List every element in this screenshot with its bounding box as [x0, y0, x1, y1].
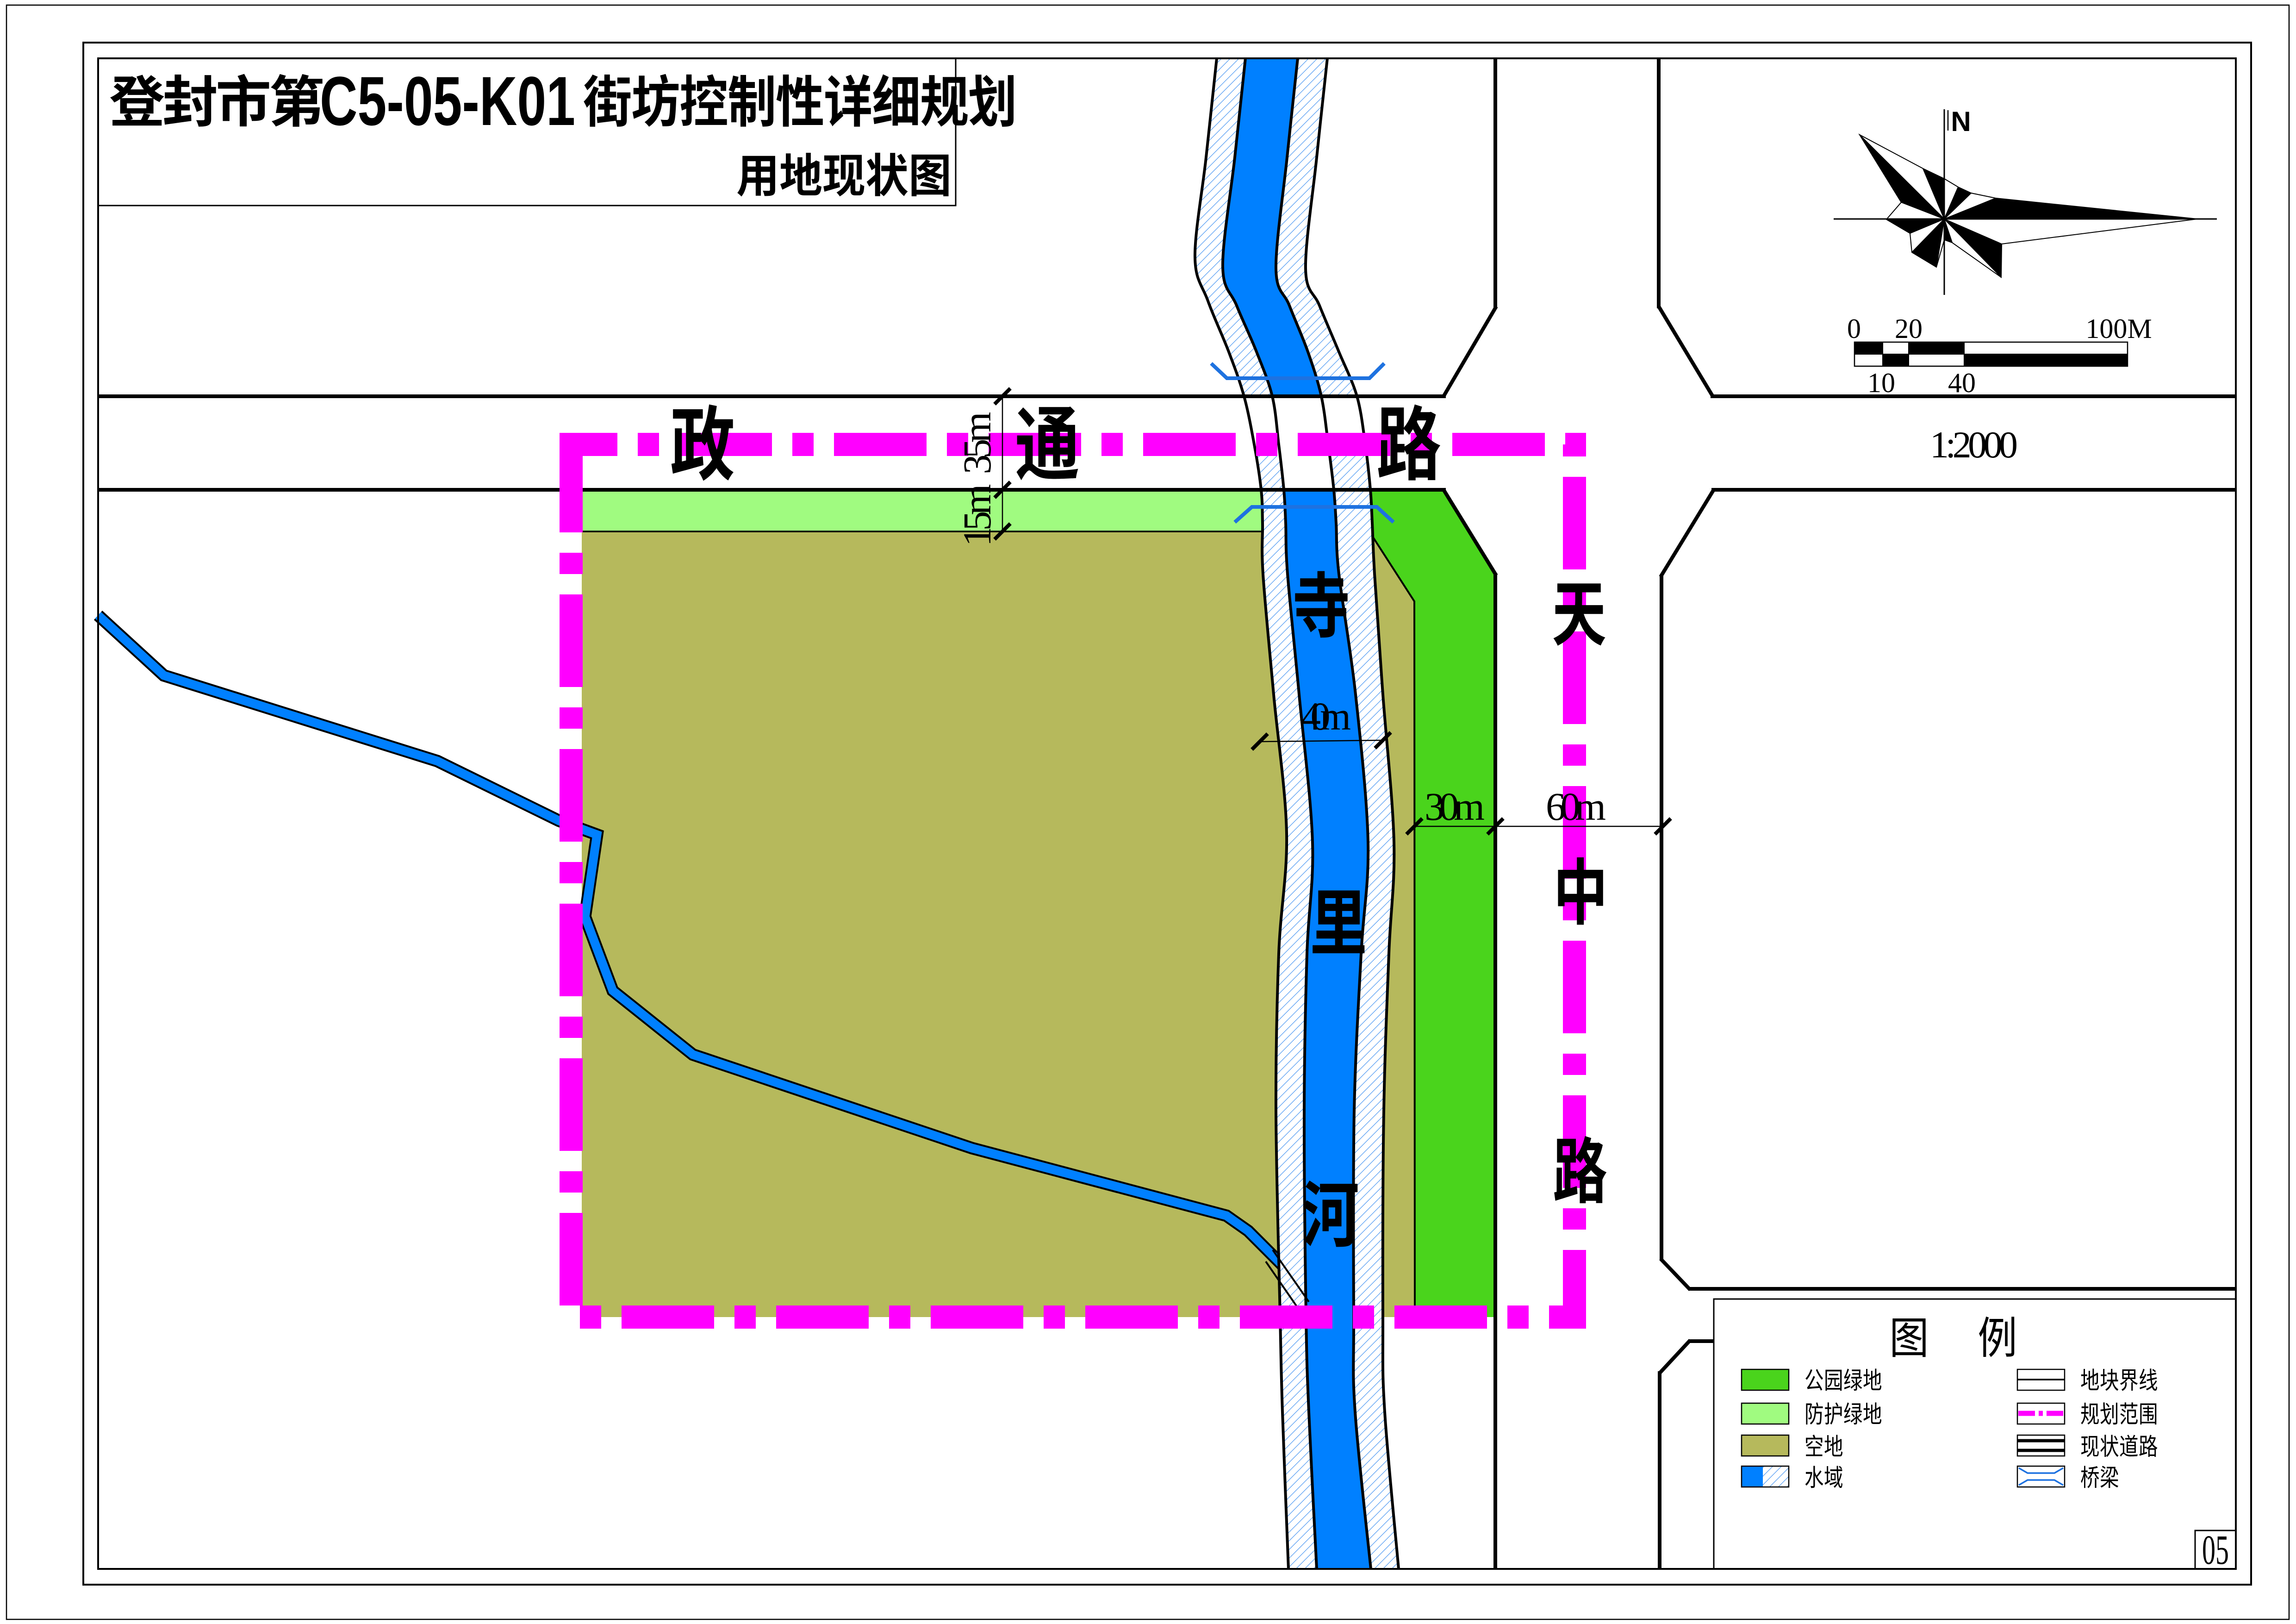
svg-text:1:2000: 1:2000 — [1930, 424, 2018, 466]
svg-text:15m: 15m — [955, 484, 999, 547]
svg-text:05: 05 — [2202, 1527, 2229, 1573]
svg-text:40: 40 — [1948, 368, 1976, 398]
svg-text:30m: 30m — [1425, 784, 1485, 829]
svg-text:0: 0 — [1847, 313, 1861, 344]
svg-text:40m: 40m — [1301, 694, 1351, 738]
svg-text:100M: 100M — [2085, 313, 2152, 344]
svg-text:60m: 60m — [1546, 784, 1606, 829]
svg-text:N: N — [1951, 106, 1971, 137]
svg-text:10: 10 — [1867, 368, 1895, 398]
svg-text:C5-05-K01: C5-05-K01 — [320, 62, 575, 140]
svg-text:35m: 35m — [955, 412, 999, 475]
svg-text:20: 20 — [1895, 313, 1923, 344]
